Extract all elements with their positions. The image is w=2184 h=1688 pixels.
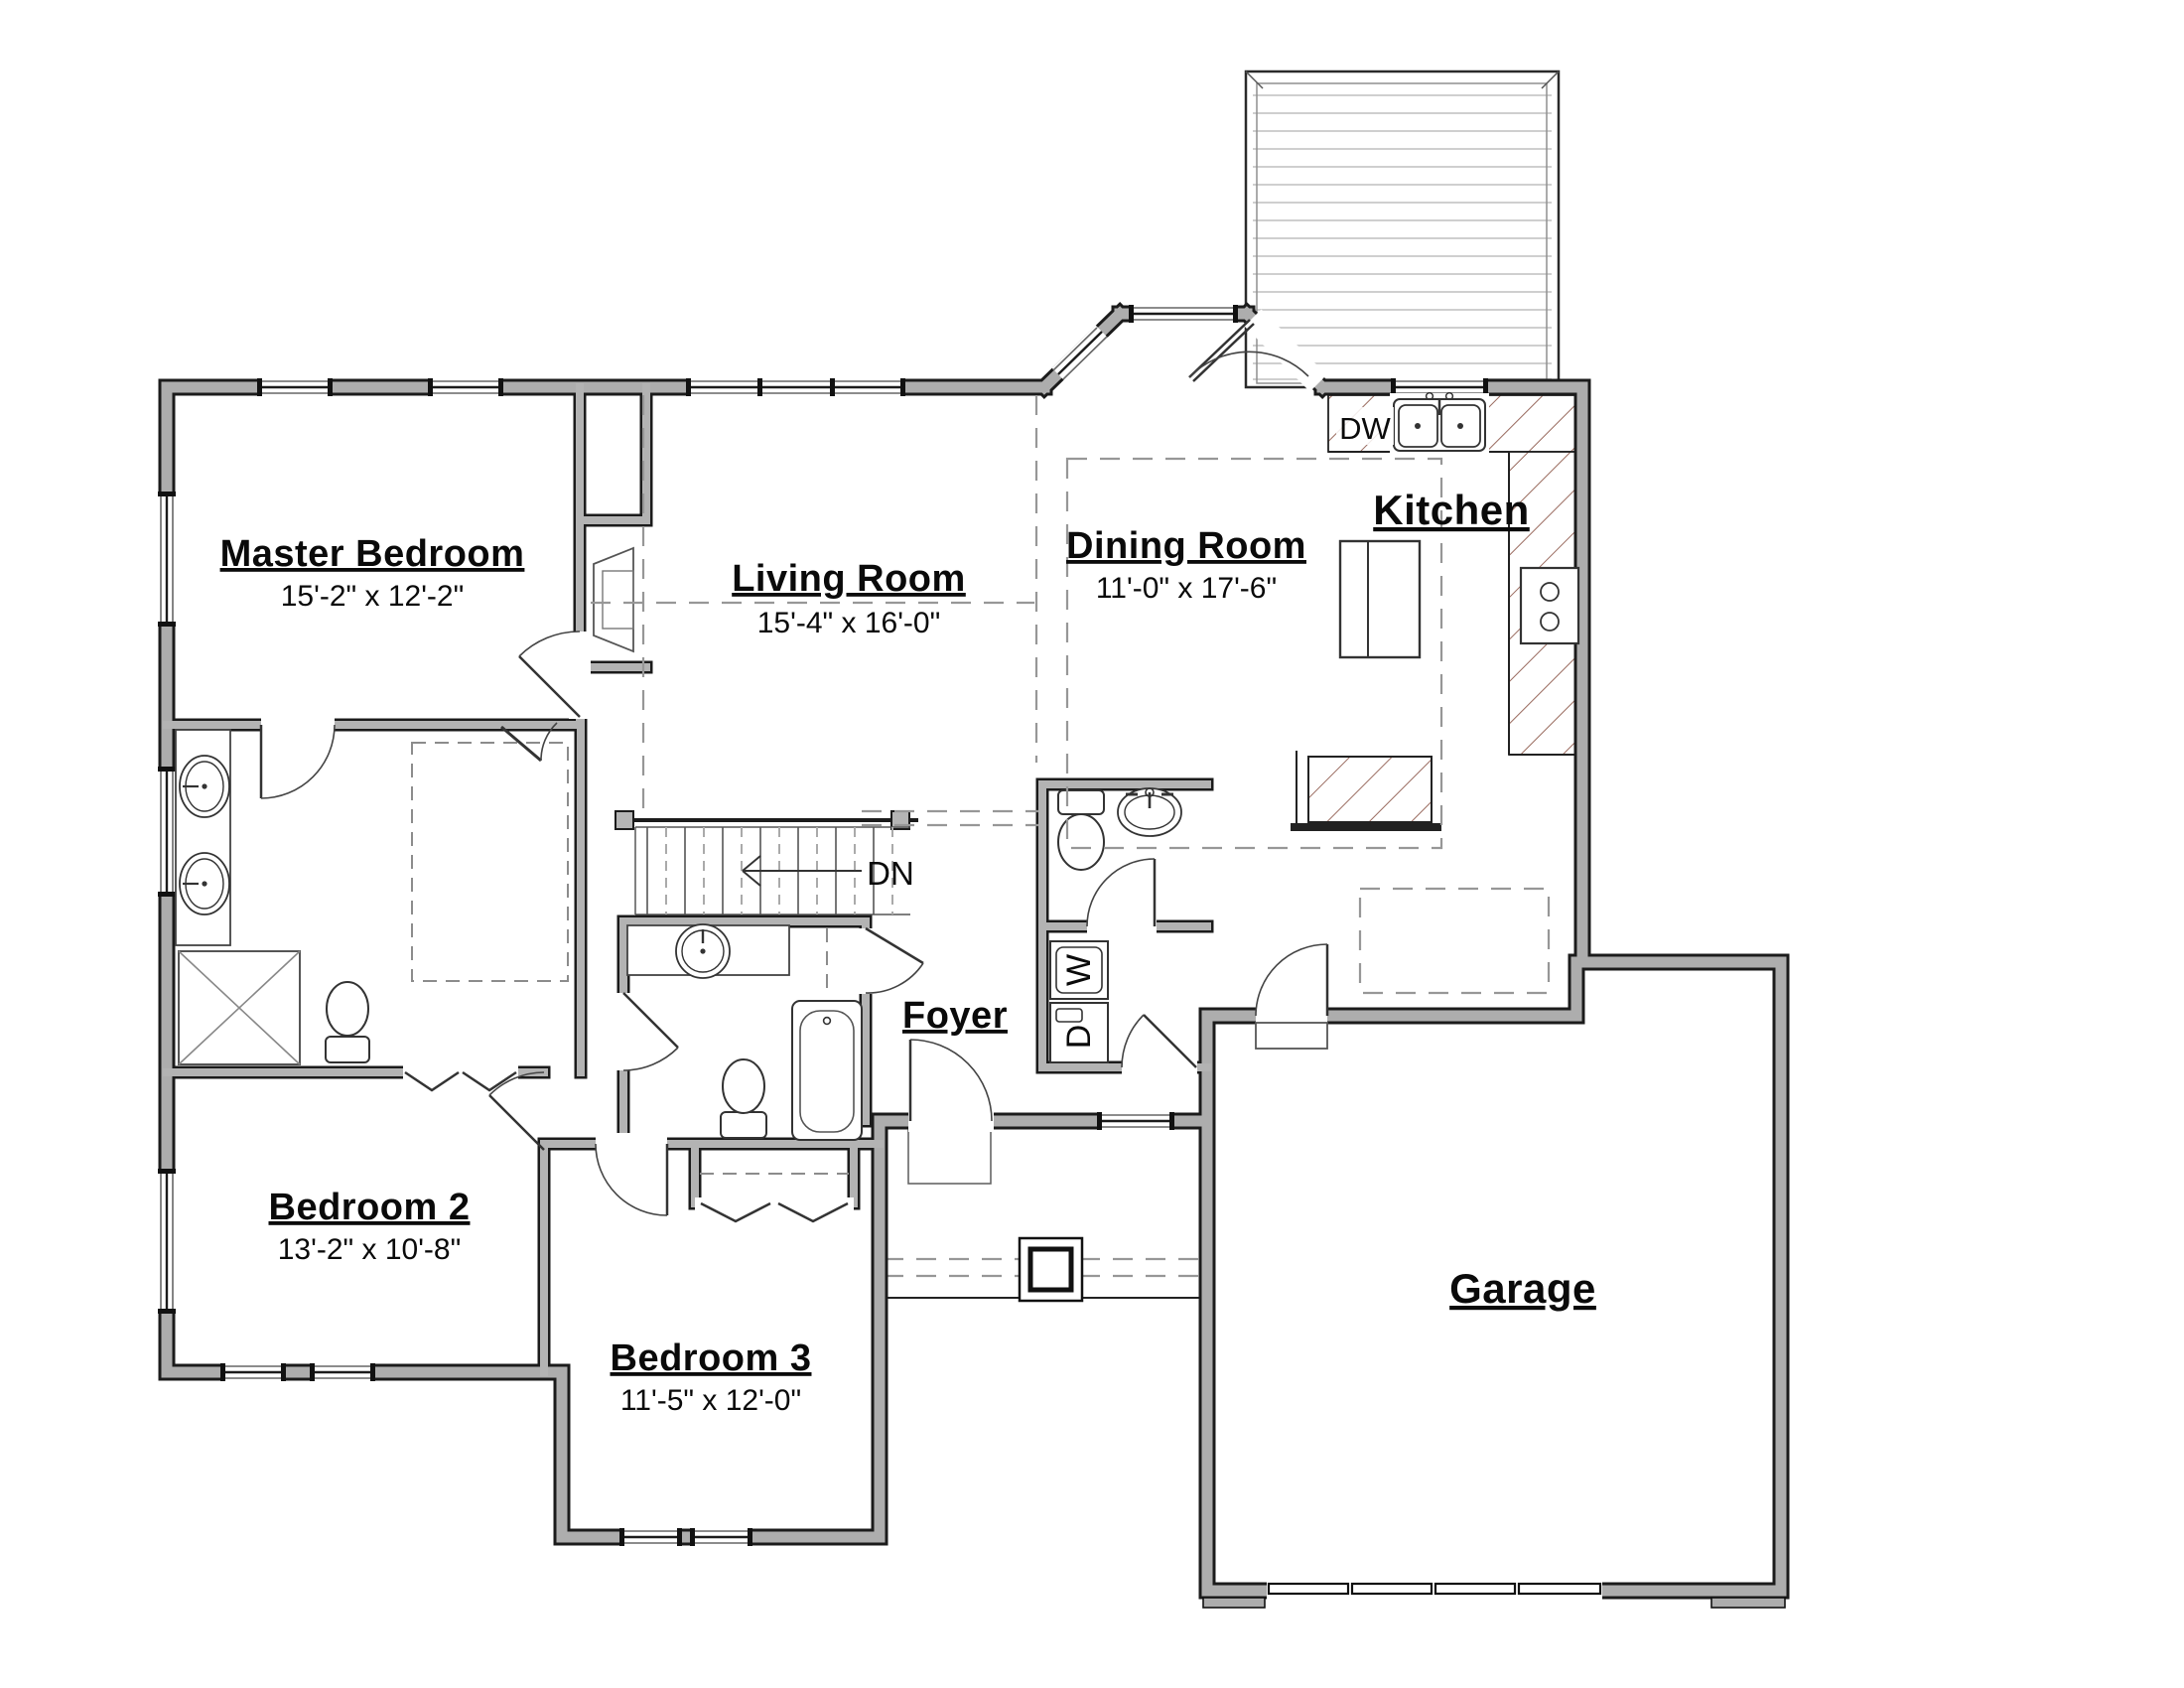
stairs-dn-label: DN bbox=[867, 855, 914, 892]
room-label-living-room: Living Room bbox=[732, 558, 966, 600]
floor-plan-canvas: DN DW bbox=[0, 0, 2184, 1688]
kitchen-sink bbox=[1390, 393, 1489, 453]
powder-sink bbox=[1118, 788, 1181, 836]
window bbox=[158, 492, 176, 627]
window bbox=[619, 1528, 682, 1546]
walk-in-closet bbox=[412, 723, 568, 981]
shower bbox=[179, 951, 300, 1064]
washer-label: W bbox=[1060, 954, 1098, 986]
window bbox=[257, 378, 333, 396]
hall-bath-vanity bbox=[627, 924, 789, 978]
dishwasher-label: DW bbox=[1339, 411, 1391, 446]
powder-toilet bbox=[1058, 790, 1104, 870]
room-label-garage: Garage bbox=[1449, 1265, 1596, 1312]
window bbox=[1097, 1112, 1174, 1130]
window bbox=[1053, 328, 1107, 379]
dryer: D bbox=[1050, 1003, 1108, 1062]
room-dims-living-room: 15'-4" x 16'-0" bbox=[757, 607, 941, 639]
tv-niche bbox=[594, 548, 633, 651]
room-dims-bedroom-2: 13'-2" x 10'-8" bbox=[278, 1233, 462, 1266]
room-dims-master-bedroom: 15'-2" x 12'-2" bbox=[281, 580, 465, 613]
front-porch bbox=[880, 1125, 1205, 1301]
toilet-master bbox=[326, 982, 369, 1062]
garage-step bbox=[1256, 1023, 1327, 1049]
dryer-label: D bbox=[1060, 1025, 1098, 1050]
window bbox=[158, 767, 176, 897]
entry-step bbox=[908, 1125, 991, 1184]
stairs: DN bbox=[615, 811, 918, 914]
bathtub bbox=[792, 1001, 862, 1140]
washer: W bbox=[1050, 941, 1108, 999]
deck bbox=[1246, 71, 1559, 387]
front-door bbox=[910, 1040, 992, 1121]
master-vanity bbox=[176, 730, 230, 945]
room-label-bedroom-2: Bedroom 2 bbox=[269, 1187, 471, 1228]
room-label-kitchen: Kitchen bbox=[1373, 487, 1530, 533]
toilet-hall-bath bbox=[721, 1059, 766, 1138]
master-bath-door bbox=[261, 725, 335, 798]
window bbox=[310, 1363, 375, 1381]
room-dims-bedroom-3: 11'-5" x 12'-0" bbox=[620, 1384, 801, 1417]
porch-column bbox=[1020, 1238, 1082, 1301]
window bbox=[158, 1169, 176, 1314]
kitchen-island bbox=[1340, 541, 1420, 657]
range bbox=[1521, 568, 1578, 643]
window bbox=[220, 1363, 286, 1381]
room-label-bedroom-3: Bedroom 3 bbox=[611, 1337, 812, 1379]
dishwasher: DW bbox=[1336, 407, 1394, 446]
window bbox=[428, 378, 503, 396]
floor-plan-page: DN DW bbox=[0, 0, 2184, 1688]
room-label-foyer: Foyer bbox=[902, 995, 1008, 1037]
window bbox=[686, 378, 905, 396]
room-label-master-bedroom: Master Bedroom bbox=[220, 533, 525, 575]
window bbox=[1129, 305, 1238, 323]
refrigerator bbox=[1291, 751, 1441, 827]
window bbox=[690, 1528, 752, 1546]
room-label-dining-room: Dining Room bbox=[1066, 525, 1306, 567]
room-dims-dining-room: 11'-0" x 17'-6" bbox=[1096, 572, 1277, 605]
